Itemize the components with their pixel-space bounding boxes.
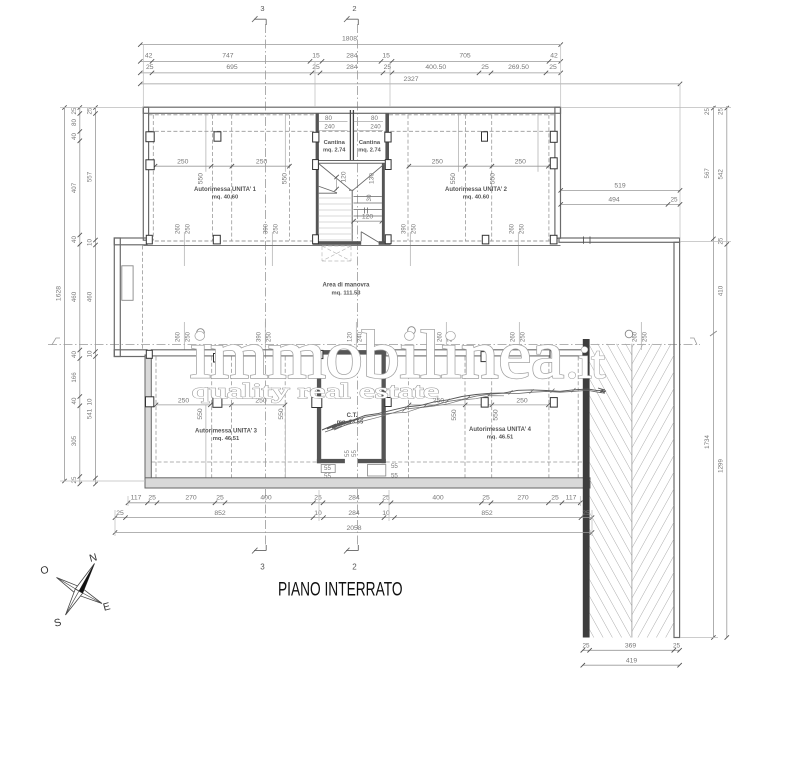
svg-text:mq. 40.60: mq. 40.60 <box>463 194 489 200</box>
svg-text:25: 25 <box>216 494 224 501</box>
svg-text:250: 250 <box>411 223 417 234</box>
svg-text:10: 10 <box>86 398 93 405</box>
svg-text:260: 260 <box>632 331 638 342</box>
svg-text:25: 25 <box>86 107 93 114</box>
svg-text:410: 410 <box>717 285 724 296</box>
svg-text:260: 260 <box>175 223 181 234</box>
svg-text:550: 550 <box>278 408 285 420</box>
svg-text:550: 550 <box>197 408 204 420</box>
svg-text:25: 25 <box>482 494 490 501</box>
svg-text:494: 494 <box>608 197 620 204</box>
svg-text:250: 250 <box>273 223 279 234</box>
svg-text:1628: 1628 <box>56 286 63 301</box>
svg-text:284: 284 <box>348 510 360 517</box>
svg-text:550: 550 <box>490 173 497 185</box>
svg-text:550: 550 <box>282 173 289 185</box>
svg-text:mq. 46.51: mq. 46.51 <box>487 434 514 440</box>
svg-text:mq. 2.74: mq. 2.74 <box>323 147 346 153</box>
svg-text:25: 25 <box>704 108 711 115</box>
svg-text:40: 40 <box>71 133 78 140</box>
svg-text:Autorimessa UNITA’ 4: Autorimessa UNITA’ 4 <box>469 427 532 433</box>
svg-text:117: 117 <box>131 494 142 501</box>
svg-text:25: 25 <box>148 494 156 501</box>
svg-text:42: 42 <box>550 53 558 60</box>
svg-text:284: 284 <box>348 494 360 501</box>
svg-text:305: 305 <box>71 435 78 446</box>
svg-text:407: 407 <box>71 182 78 193</box>
svg-text:400: 400 <box>432 494 444 501</box>
svg-text:80: 80 <box>371 115 378 122</box>
svg-text:390: 390 <box>263 223 269 234</box>
svg-text:390: 390 <box>401 223 407 234</box>
svg-text:quality real estate: quality real estate <box>192 379 439 403</box>
svg-text:369: 369 <box>625 643 637 650</box>
svg-text:mq. 2.74: mq. 2.74 <box>358 147 381 153</box>
svg-text:55: 55 <box>391 463 398 470</box>
svg-text:695: 695 <box>226 64 238 71</box>
svg-text:250: 250 <box>519 223 525 234</box>
svg-text:460: 460 <box>86 291 93 302</box>
svg-text:25: 25 <box>312 64 320 71</box>
svg-text:284: 284 <box>346 64 358 71</box>
svg-text:542: 542 <box>717 169 724 180</box>
svg-text:747: 747 <box>222 53 234 60</box>
svg-text:mq. 46.51: mq. 46.51 <box>213 436 240 442</box>
svg-text:130: 130 <box>369 173 376 184</box>
svg-text:250: 250 <box>256 159 268 166</box>
svg-text:Cantina: Cantina <box>324 140 346 146</box>
svg-text:10: 10 <box>314 510 322 517</box>
svg-text:250: 250 <box>432 159 444 166</box>
svg-text:2: 2 <box>352 563 357 572</box>
svg-text:55: 55 <box>324 473 331 480</box>
svg-text:80: 80 <box>71 119 78 126</box>
svg-text:400.50: 400.50 <box>425 64 446 71</box>
svg-text:250: 250 <box>515 159 527 166</box>
svg-text:1299: 1299 <box>717 459 724 473</box>
svg-text:705: 705 <box>459 53 471 60</box>
svg-text:55: 55 <box>324 465 331 472</box>
svg-text:55: 55 <box>391 473 398 480</box>
svg-text:284: 284 <box>346 53 358 60</box>
svg-text:25: 25 <box>71 107 78 114</box>
svg-text:250: 250 <box>185 223 191 234</box>
svg-text:550: 550 <box>197 173 204 185</box>
svg-text:460: 460 <box>71 291 78 302</box>
svg-text:55: 55 <box>351 450 358 457</box>
svg-text:.it: .it <box>566 337 605 388</box>
svg-text:567: 567 <box>704 168 711 179</box>
svg-text:80: 80 <box>325 115 332 122</box>
svg-text:Cantina: Cantina <box>359 140 381 146</box>
svg-text:419: 419 <box>626 657 638 664</box>
svg-text:C.T.: C.T. <box>347 413 358 419</box>
svg-text:120: 120 <box>341 171 348 182</box>
svg-text:25: 25 <box>146 64 154 71</box>
svg-text:15: 15 <box>382 53 390 60</box>
svg-text:PIANO INTERRATO: PIANO INTERRATO <box>278 580 403 601</box>
svg-text:400: 400 <box>260 494 272 501</box>
svg-text:166: 166 <box>71 372 78 383</box>
svg-text:269.50: 269.50 <box>508 64 529 71</box>
svg-text:2327: 2327 <box>403 76 418 83</box>
svg-text:3: 3 <box>260 4 264 13</box>
svg-text:519: 519 <box>614 183 626 190</box>
svg-text:120: 120 <box>362 214 374 221</box>
svg-text:25: 25 <box>71 476 78 483</box>
svg-text:40: 40 <box>71 236 78 243</box>
svg-text:mq. 40.60: mq. 40.60 <box>212 194 238 200</box>
svg-text:541: 541 <box>86 408 93 419</box>
svg-text:2: 2 <box>352 4 356 13</box>
svg-text:25: 25 <box>582 643 590 650</box>
svg-text:40: 40 <box>71 351 78 358</box>
svg-text:550: 550 <box>450 173 457 185</box>
svg-text:260: 260 <box>175 331 181 342</box>
svg-text:25: 25 <box>481 64 489 71</box>
svg-text:25: 25 <box>717 237 724 244</box>
svg-text:Autorimessa UNITA’ 3: Autorimessa UNITA’ 3 <box>195 429 258 435</box>
svg-text:240: 240 <box>370 123 381 130</box>
svg-text:250: 250 <box>642 331 648 342</box>
svg-text:2058: 2058 <box>346 525 361 532</box>
svg-text:10: 10 <box>86 239 93 246</box>
svg-text:15: 15 <box>312 53 320 60</box>
svg-text:Autorimessa UNITA’ 1: Autorimessa UNITA’ 1 <box>194 187 257 193</box>
svg-text:250: 250 <box>177 159 189 166</box>
svg-text:40: 40 <box>71 397 78 404</box>
svg-text:550: 550 <box>451 409 458 421</box>
svg-text:250: 250 <box>516 397 528 404</box>
svg-text:270: 270 <box>185 494 197 501</box>
svg-text:Area di manovra: Area di manovra <box>322 282 370 288</box>
svg-text:25: 25 <box>314 494 322 501</box>
svg-text:30: 30 <box>366 194 373 201</box>
svg-text:25: 25 <box>670 197 678 204</box>
svg-text:25: 25 <box>582 510 590 517</box>
svg-text:1734: 1734 <box>704 435 711 449</box>
svg-text:25: 25 <box>549 64 557 71</box>
svg-text:240: 240 <box>324 123 335 130</box>
svg-text:250: 250 <box>178 397 190 404</box>
svg-text:1808: 1808 <box>342 36 357 43</box>
svg-text:117: 117 <box>566 494 577 501</box>
svg-text:270: 270 <box>517 494 529 501</box>
svg-text:42: 42 <box>145 53 153 60</box>
svg-text:25: 25 <box>116 510 124 517</box>
svg-text:557: 557 <box>86 171 93 182</box>
svg-text:260: 260 <box>509 223 515 234</box>
svg-text:25: 25 <box>717 108 724 115</box>
svg-text:Autorimessa UNITA’ 2: Autorimessa UNITA’ 2 <box>445 187 508 193</box>
svg-text:550: 550 <box>492 409 499 421</box>
svg-text:3: 3 <box>260 563 265 572</box>
svg-text:10: 10 <box>86 350 93 357</box>
svg-text:852: 852 <box>481 510 493 517</box>
svg-text:25: 25 <box>551 494 559 501</box>
svg-text:852: 852 <box>214 510 226 517</box>
svg-text:55: 55 <box>344 450 351 457</box>
svg-text:mq. 111.53: mq. 111.53 <box>331 290 361 296</box>
svg-text:25: 25 <box>673 643 681 650</box>
